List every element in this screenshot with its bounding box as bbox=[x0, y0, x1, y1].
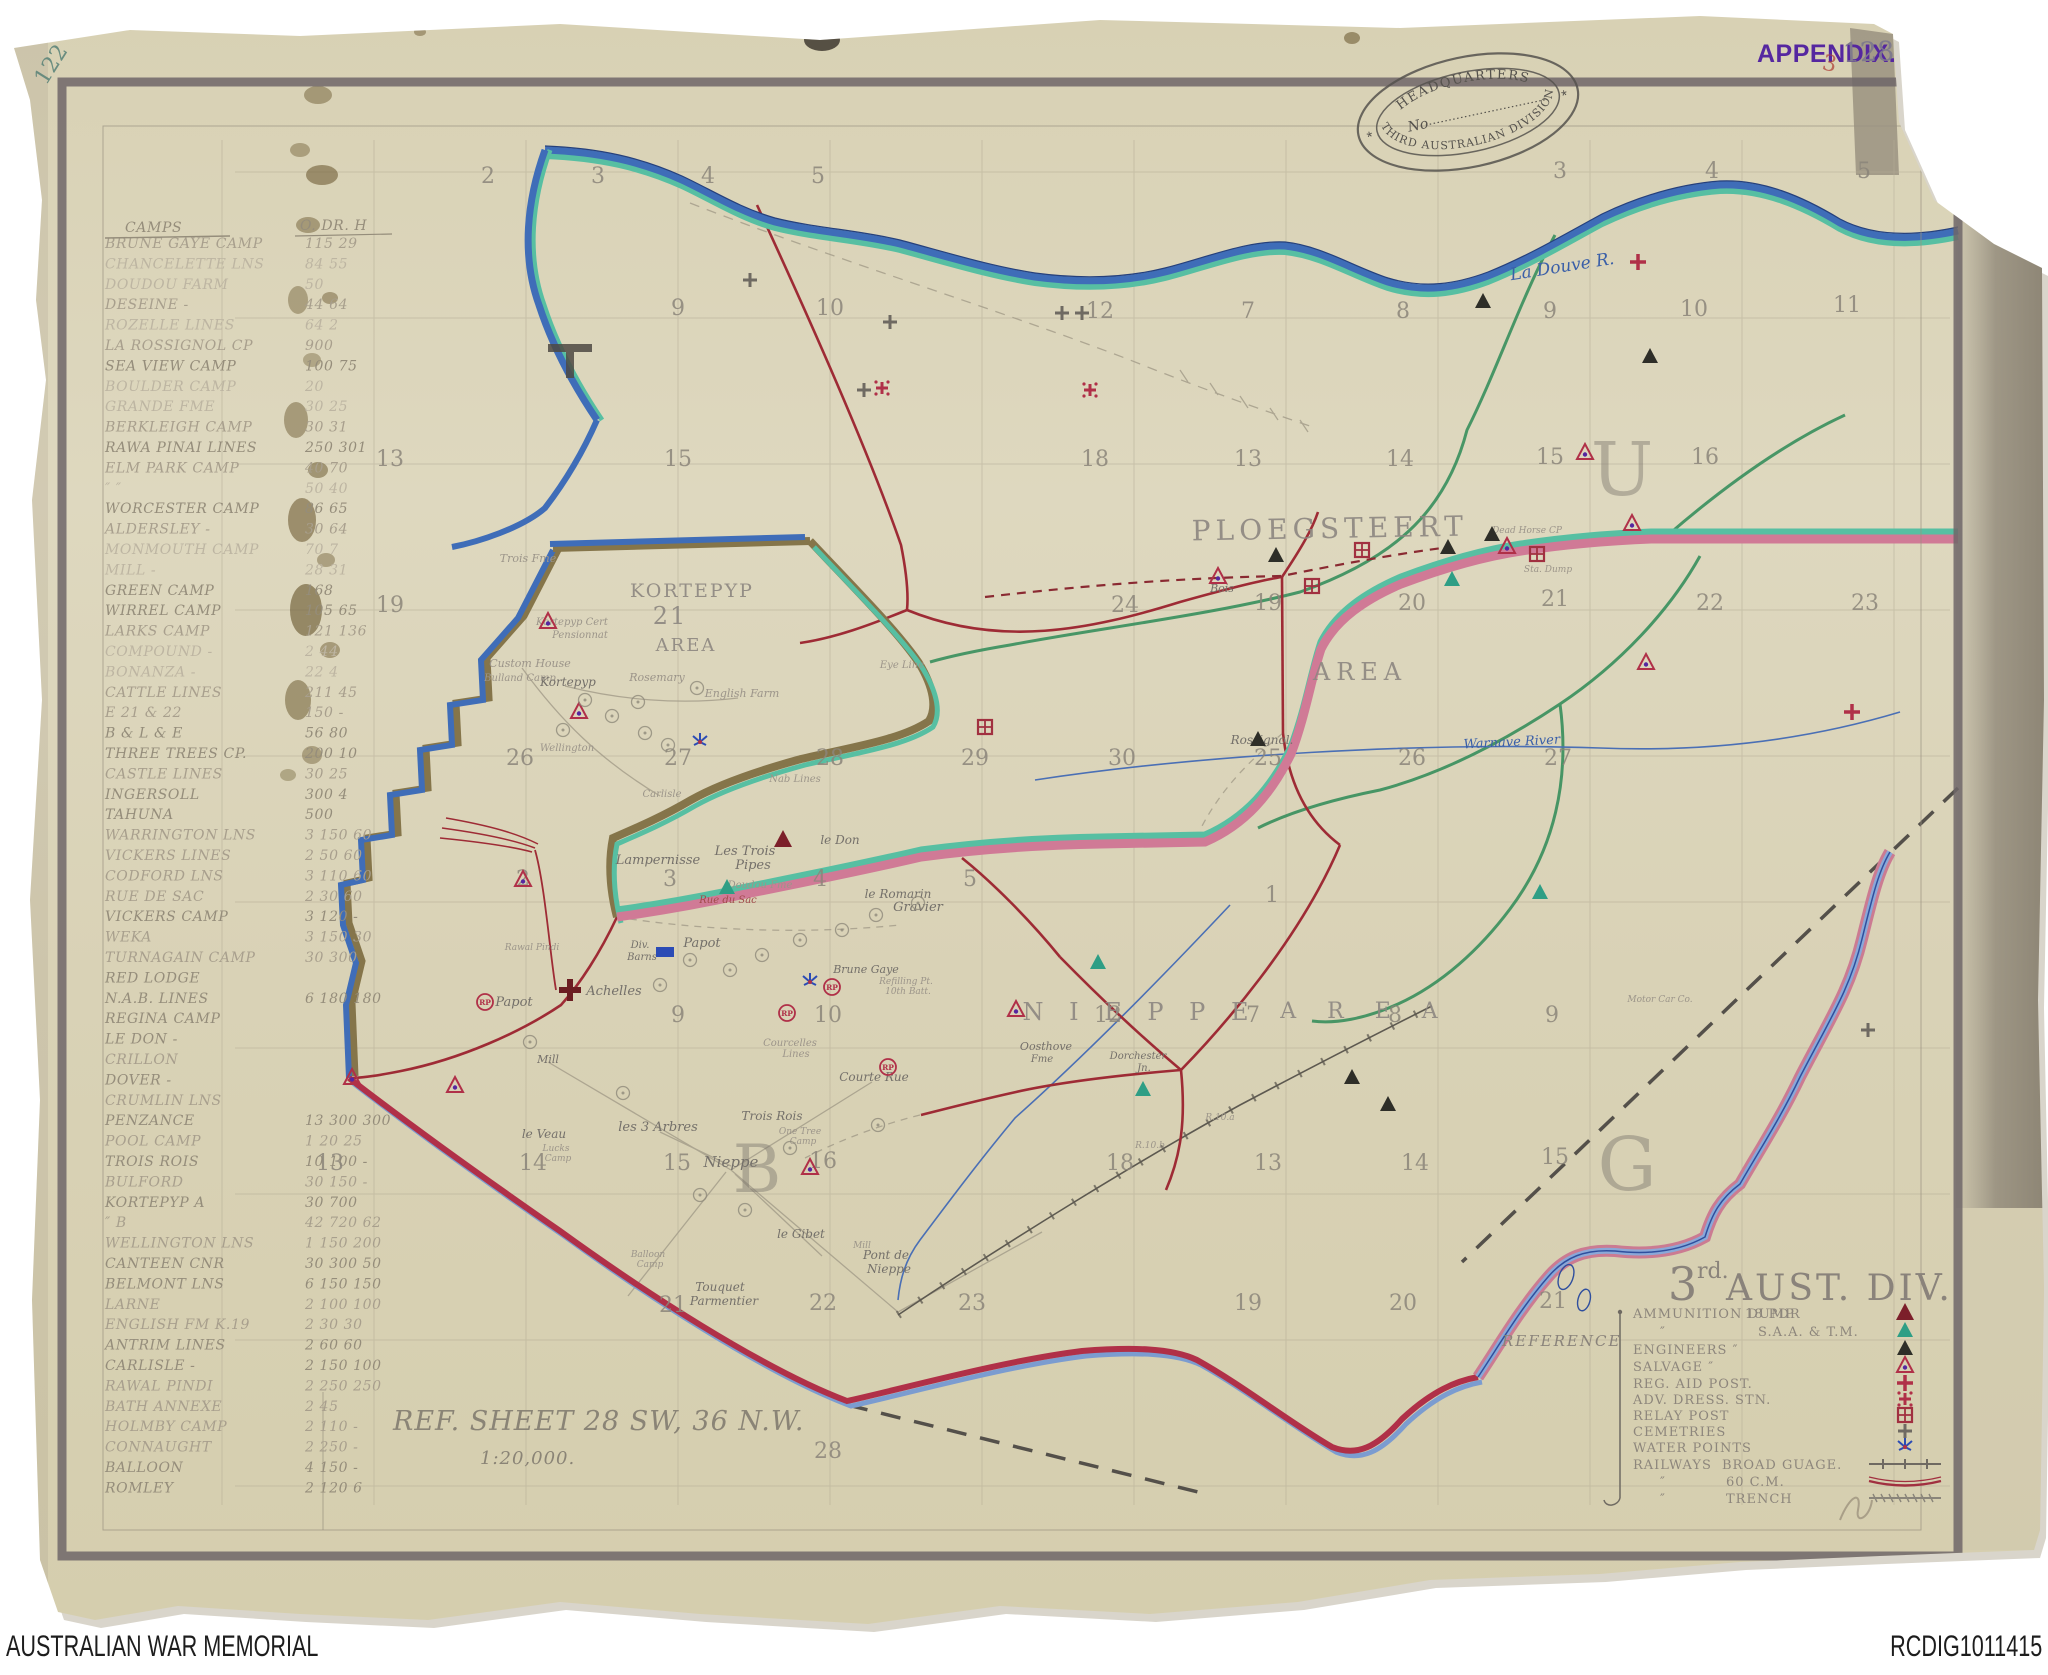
camp-row-value: 44 64 bbox=[304, 297, 348, 313]
grid-number: 26 bbox=[506, 746, 534, 771]
camp-row-value: 2 100 100 bbox=[304, 1297, 382, 1313]
place-label: Les Trois bbox=[714, 844, 776, 859]
camp-row-value: 115 29 bbox=[305, 236, 358, 252]
grid-number: 29 bbox=[961, 746, 989, 771]
camp-row-value: 900 bbox=[305, 338, 334, 354]
camp-row-value: 70 7 bbox=[305, 542, 339, 558]
place-label: Camp bbox=[545, 1154, 572, 1164]
grid-number: 5 bbox=[963, 867, 977, 892]
camp-row-value: 2 50 60 bbox=[304, 848, 363, 864]
grid-number: 4 bbox=[1705, 159, 1719, 184]
camp-row-name: CRUMLIN LNS bbox=[105, 1093, 222, 1109]
camp-row-value: 84 55 bbox=[305, 256, 348, 272]
camp-row-name: ELM PARK CAMP bbox=[104, 460, 239, 476]
camp-row-name: KORTEPYP A bbox=[104, 1195, 205, 1211]
camp-row-name: CHANCELETTE LNS bbox=[105, 256, 264, 272]
camp-row-value: 2 120 6 bbox=[304, 1480, 363, 1496]
place-label: Rosemary bbox=[628, 671, 685, 684]
camp-row-value: 30 25 bbox=[305, 766, 348, 782]
legend-item-label: SALVAGE ″ bbox=[1633, 1360, 1714, 1375]
grid-number: 16 bbox=[1691, 445, 1719, 470]
svg-text:RP: RP bbox=[826, 983, 838, 992]
camp-row-value: 105 65 bbox=[305, 603, 358, 619]
map-symbol-cross-dots-icon bbox=[874, 380, 889, 395]
camp-row-name: ROMLEY bbox=[104, 1480, 175, 1496]
grid-number: 15 bbox=[664, 447, 692, 472]
map-symbol-cross-dots-icon bbox=[1897, 1391, 1912, 1406]
svg-text:RP: RP bbox=[781, 1009, 793, 1018]
camp-row-value: 3 150 30 bbox=[305, 930, 372, 946]
camp-row-value: 150 - bbox=[305, 705, 344, 721]
camp-row-name: POOL CAMP bbox=[104, 1134, 201, 1150]
camp-row-value: 50 40 bbox=[305, 481, 348, 497]
place-label: Dorchester bbox=[1109, 1051, 1168, 1062]
grid-number: 14 bbox=[1401, 1151, 1429, 1176]
place-label: Carlisle bbox=[642, 789, 681, 800]
camp-row-name: WORCESTER CAMP bbox=[105, 501, 259, 517]
camp-row-value: 4 150 - bbox=[304, 1460, 358, 1476]
camp-row-name: TAHUNA bbox=[105, 807, 174, 823]
map-scale: 1:20,000. bbox=[480, 1448, 575, 1469]
camp-row-value: 50 bbox=[305, 277, 324, 293]
paper-right-fold-band bbox=[1956, 80, 2044, 1208]
division-title-rest: AUST. DIV. bbox=[1725, 1268, 1953, 1309]
camp-row-name: BULFORD bbox=[104, 1174, 184, 1190]
division-title-rd: rd. bbox=[1697, 1259, 1729, 1284]
legend-item-label: CEMETRIES bbox=[1633, 1425, 1726, 1440]
place-label: Div. bbox=[630, 940, 650, 951]
camp-row-value: 200 10 bbox=[304, 746, 358, 762]
camp-row-name: RUE DE SAC bbox=[104, 889, 204, 905]
place-label: Mill bbox=[536, 1053, 559, 1066]
grid-number: 19 bbox=[1234, 1291, 1262, 1316]
legend-item-detail: BROAD GUAGE. bbox=[1722, 1458, 1842, 1473]
camp-row-name: ANTRIM LINES bbox=[103, 1338, 226, 1354]
grid-number: 13 bbox=[1254, 1151, 1282, 1176]
place-label: Rawal Pindi bbox=[504, 943, 560, 953]
grid-number: 19 bbox=[376, 593, 404, 618]
camp-row-name: DOVER - bbox=[104, 1072, 172, 1088]
place-label: Trois Fme bbox=[500, 552, 557, 565]
place-label: R.10.a bbox=[1204, 1113, 1234, 1123]
camp-row-name: ″ B bbox=[105, 1215, 127, 1231]
paper-right-lower-shade bbox=[1960, 1208, 2044, 1550]
archive-scan-page: { "archive": { "footer_left": "AUSTRALIA… bbox=[0, 0, 2048, 1670]
grid-number: 4 bbox=[701, 164, 715, 189]
grid-number: 14 bbox=[1386, 447, 1414, 472]
place-label: Balloon bbox=[630, 1250, 666, 1260]
svg-text:RP: RP bbox=[882, 1063, 894, 1072]
legend-item-detail: S.A.A. & T.M. bbox=[1758, 1325, 1859, 1340]
camp-row-name: BALLOON bbox=[104, 1460, 184, 1476]
legend-item-detail: 18 PDR bbox=[1745, 1307, 1801, 1322]
area-name: KORTEPYP bbox=[630, 580, 754, 602]
camp-row-value: 3 150 60 bbox=[305, 828, 372, 844]
camp-row-name: BOULDER CAMP bbox=[104, 379, 236, 395]
camp-row-value: 100 75 bbox=[305, 358, 358, 374]
camp-row-value: 2 44 bbox=[304, 644, 339, 660]
place-label: Lines bbox=[781, 1049, 809, 1060]
grid-sheet-letter: G bbox=[1597, 1122, 1656, 1208]
camp-row-name: GREEN CAMP bbox=[105, 583, 214, 599]
place-label: le Don bbox=[820, 833, 859, 847]
archive-footer-id: RCDIG1011415 bbox=[1890, 1630, 2042, 1664]
place-label: Courte Rue bbox=[839, 1070, 908, 1084]
camp-row-name: VICKERS CAMP bbox=[105, 909, 228, 925]
camp-row-name: RAWAL PINDI bbox=[104, 1378, 213, 1394]
camp-row-name: VICKERS LINES bbox=[105, 848, 231, 864]
grid-number: 16 bbox=[809, 1149, 837, 1174]
camp-row-name: RAWA PINAI LINES bbox=[104, 440, 257, 456]
camp-row-value: 1 20 25 bbox=[305, 1134, 363, 1150]
camp-row-value: 2 45 bbox=[304, 1399, 339, 1415]
grid-number: 3 bbox=[663, 867, 677, 892]
camp-row-name: DOUDOU FARM bbox=[104, 277, 229, 293]
legend-item-label: RELAY POST bbox=[1633, 1409, 1729, 1424]
legend-item-label: ″ bbox=[1660, 1325, 1666, 1340]
camp-row-name: B & L & E bbox=[104, 726, 183, 742]
page-number: 128 bbox=[1842, 36, 1895, 69]
area-name: N I E P P E bbox=[1023, 998, 1258, 1026]
place-label: Oosthove bbox=[1020, 1040, 1073, 1053]
place-label: Brune Gaye bbox=[832, 963, 899, 976]
camp-row-name: ″ ″ bbox=[105, 481, 122, 497]
archive-footer-institution: AUSTRALIAN WAR MEMORIAL bbox=[6, 1630, 318, 1664]
grid-number: 13 bbox=[376, 447, 404, 472]
camp-row-value: 22 4 bbox=[304, 664, 339, 680]
grid-number: 25 bbox=[1254, 746, 1282, 771]
grid-number: 9 bbox=[671, 1003, 685, 1028]
grid-number: 9 bbox=[671, 296, 685, 321]
camp-row-name: CONNAUGHT bbox=[105, 1440, 213, 1456]
place-label: Rue du Sac bbox=[698, 895, 757, 906]
legend-item-label: ADV. DRESS. STN. bbox=[1632, 1393, 1771, 1408]
place-label: Dead Horse CP bbox=[1491, 526, 1563, 536]
camps-header-name: CAMPS bbox=[125, 220, 182, 236]
camp-row-value: 168 bbox=[305, 583, 334, 599]
camp-row-name: LA ROSSIGNOL CP bbox=[104, 338, 253, 354]
place-label: Custom House bbox=[489, 657, 571, 670]
legend-item-label: RAILWAYS bbox=[1633, 1458, 1712, 1473]
grid-number: 18 bbox=[1106, 1151, 1134, 1176]
place-label: Wellington bbox=[540, 743, 594, 754]
place-label: Fme bbox=[1030, 1054, 1053, 1065]
grid-number: 5 bbox=[811, 164, 825, 189]
grid-number: 15 bbox=[663, 1151, 691, 1176]
place-label: Parmentier bbox=[689, 1294, 759, 1308]
division-title-3: 3 bbox=[1668, 1257, 1697, 1311]
grid-number: 30 bbox=[1108, 746, 1136, 771]
grid-number: 22 bbox=[1696, 591, 1724, 616]
camp-row-value: 2 30 60 bbox=[304, 889, 363, 905]
camp-row-value: 2 110 - bbox=[304, 1419, 358, 1435]
area-name: PLOEGSTEERT bbox=[1191, 510, 1468, 548]
place-label: R.10.b bbox=[1134, 1141, 1165, 1151]
legend-item-detail: 60 C.M. bbox=[1726, 1475, 1785, 1490]
place-label: le Romarin bbox=[865, 887, 932, 901]
camp-row-value: 3 120 - bbox=[305, 909, 358, 925]
camp-row-name: ALDERSLEY - bbox=[103, 522, 211, 538]
place-label: Lampernisse bbox=[615, 853, 701, 868]
grid-number: 1 bbox=[1265, 883, 1279, 908]
camp-row-value: 2 30 30 bbox=[304, 1317, 363, 1333]
grid-number: 21 bbox=[659, 1293, 687, 1318]
place-label: Doudou Fme bbox=[727, 880, 793, 891]
camp-row-name: THREE TREES CP. bbox=[105, 746, 247, 762]
camp-row-value: 30 700 bbox=[305, 1195, 358, 1211]
place-label: Camp bbox=[637, 1260, 664, 1270]
camp-row-value: 20 bbox=[304, 379, 324, 395]
grid-number: 8 bbox=[1396, 299, 1410, 324]
camp-row-value: 2 250 250 bbox=[304, 1378, 382, 1394]
grid-number: 23 bbox=[958, 1291, 986, 1316]
camp-row-value: 2 150 100 bbox=[304, 1358, 382, 1374]
place-label: English Farm bbox=[704, 687, 780, 700]
grid-number: 13 bbox=[316, 1151, 344, 1176]
grid-number: 21 bbox=[1541, 587, 1569, 612]
camp-row-name: SEA VIEW CAMP bbox=[105, 358, 236, 374]
camp-row-value: 500 bbox=[305, 807, 334, 823]
camp-row-value: 2 250 - bbox=[304, 1440, 358, 1456]
place-label: Papot bbox=[682, 936, 721, 951]
grid-number: 21 bbox=[1539, 1289, 1567, 1314]
camp-row-value: 121 136 bbox=[305, 624, 367, 640]
map-symbol-hq-icon bbox=[656, 947, 674, 957]
place-label: Kortepyp bbox=[539, 675, 596, 689]
camp-row-name: BELMONT LNS bbox=[104, 1276, 224, 1292]
grid-number: 14 bbox=[519, 1151, 547, 1176]
place-label: les 3 Arbres bbox=[618, 1120, 698, 1135]
camp-row-name: LARNE bbox=[104, 1297, 160, 1313]
grid-number: 26 bbox=[1398, 746, 1426, 771]
place-label: Achelles bbox=[585, 984, 642, 999]
place-label: 10th Batt. bbox=[885, 987, 931, 997]
camp-row-value: 86 65 bbox=[305, 501, 348, 517]
camp-row-value: 13 300 300 bbox=[305, 1113, 391, 1129]
camp-row-name: HOLMBY CAMP bbox=[104, 1419, 227, 1435]
camp-row-name: TURNAGAIN CAMP bbox=[105, 950, 256, 966]
place-label: Jn. bbox=[1135, 1063, 1151, 1074]
grid-number: 5 bbox=[1857, 159, 1871, 184]
legend-item-label: ″ bbox=[1660, 1492, 1666, 1507]
camp-row-name: REGINA CAMP bbox=[104, 1011, 220, 1027]
place-label: Papot bbox=[494, 995, 533, 1010]
place-label: Pensionnat bbox=[551, 630, 609, 641]
camp-row-name: MILL - bbox=[104, 562, 156, 578]
grid-number: 10 bbox=[814, 1003, 842, 1028]
place-label: Touquet bbox=[695, 1280, 745, 1294]
camp-row-name: WIRREL CAMP bbox=[105, 603, 221, 619]
place-label: Motor Car Co. bbox=[1626, 995, 1692, 1005]
camp-row-name: CANTEEN CNR bbox=[105, 1256, 225, 1272]
camp-row-name: CRILLON bbox=[105, 1052, 178, 1068]
camp-row-name: E 21 & 22 bbox=[104, 705, 182, 721]
grid-number: 3 bbox=[1553, 159, 1567, 184]
grid-number: 7 bbox=[1241, 299, 1255, 324]
area-name: 21 bbox=[653, 602, 688, 630]
camp-row-value: 30 31 bbox=[305, 420, 348, 436]
grid-number: 24 bbox=[1111, 593, 1139, 618]
ref-sheet-note: REF. SHEET 28 SW, 36 N.W. bbox=[392, 1406, 804, 1437]
grid-number: 27 bbox=[1544, 746, 1572, 771]
camp-row-value: 30 64 bbox=[305, 522, 348, 538]
camp-row-value: 300 4 bbox=[305, 787, 348, 803]
grid-number: 15 bbox=[1536, 445, 1564, 470]
place-label: Nieppe bbox=[866, 1262, 911, 1276]
grid-number: 10 bbox=[816, 296, 844, 321]
map-symbol-cross-dots-icon bbox=[1082, 382, 1097, 397]
camp-row-value: 42 720 62 bbox=[304, 1215, 382, 1231]
place-label: Eye Line bbox=[879, 660, 924, 671]
grid-number: 18 bbox=[1081, 447, 1109, 472]
camp-row-value: 250 301 bbox=[304, 440, 367, 456]
grid-number: 27 bbox=[664, 746, 692, 771]
camp-row-name: BRUNE GAYE CAMP bbox=[104, 236, 263, 252]
grid-number: 10 bbox=[1680, 297, 1708, 322]
camps-header-value: O. DR. H bbox=[300, 218, 367, 234]
camp-row-name: TROIS ROIS bbox=[105, 1154, 199, 1170]
grid-number: 19 bbox=[1254, 591, 1282, 616]
camp-row-name: CASTLE LINES bbox=[105, 766, 223, 782]
camp-row-value: 3 110 60 bbox=[305, 868, 372, 884]
legend-item-label: REG. AID POST. bbox=[1633, 1377, 1753, 1392]
grid-number: 3 bbox=[591, 164, 605, 189]
grid-number: 23 bbox=[1851, 591, 1879, 616]
camp-row-value: 30 300 50 bbox=[305, 1256, 382, 1272]
camp-row-name: MONMOUTH CAMP bbox=[104, 542, 259, 558]
map-scan: BRUNE GAYE CAMP115 29CHANCELETTE LNS84 5… bbox=[0, 0, 2048, 1670]
camp-row-name: ROZELLE LINES bbox=[104, 318, 235, 334]
grid-number: 15 bbox=[1541, 1145, 1569, 1170]
place-label: Nab Lines bbox=[768, 774, 821, 785]
grid-number: 20 bbox=[1389, 1291, 1417, 1316]
camp-row-name: WELLINGTON LNS bbox=[105, 1236, 254, 1252]
grid-number: 9 bbox=[1545, 1003, 1559, 1028]
grid-number: 9 bbox=[1543, 299, 1557, 324]
grid-number: 28 bbox=[814, 1439, 842, 1464]
camp-row-name: CATTLE LINES bbox=[105, 685, 222, 701]
legend-item-detail: TRENCH bbox=[1726, 1492, 1793, 1507]
place-label: Sta. Dump bbox=[1524, 565, 1572, 575]
place-label: Barns bbox=[626, 952, 657, 963]
camp-row-name: COMPOUND - bbox=[105, 644, 213, 660]
paper-left-edge-shade bbox=[14, 24, 48, 1624]
camp-row-name: WARRINGTON LNS bbox=[105, 828, 256, 844]
camp-row-value: 30 150 - bbox=[305, 1174, 368, 1190]
place-label: le Gibet bbox=[777, 1227, 825, 1241]
camp-row-name: GRANDE FME bbox=[105, 399, 215, 415]
camp-row-name: INGERSOLL bbox=[104, 787, 200, 803]
camp-row-value: 30 25 bbox=[305, 399, 348, 415]
camp-row-name: RED LODGE bbox=[104, 970, 200, 986]
place-label: Pont de bbox=[862, 1248, 909, 1262]
camp-row-value: 211 45 bbox=[304, 685, 358, 701]
camp-row-value: 40 70 bbox=[304, 460, 348, 476]
camp-row-name: BERKLEIGH CAMP bbox=[104, 420, 252, 436]
place-label: Lucks bbox=[542, 1144, 570, 1154]
camp-row-name: LARKS CAMP bbox=[104, 624, 210, 640]
grid-number: 13 bbox=[1234, 447, 1262, 472]
camp-row-name: N.A.B. LINES bbox=[104, 991, 209, 1007]
place-label: Nieppe bbox=[703, 1153, 759, 1171]
grid-number: 28 bbox=[816, 746, 844, 771]
grid-number: 11 bbox=[1833, 293, 1861, 318]
place-label: One Tree bbox=[779, 1127, 821, 1137]
grid-sheet-letter: U bbox=[1591, 427, 1653, 513]
place-label: Courcelles bbox=[763, 1038, 817, 1049]
legend-item-label: WATER POINTS bbox=[1633, 1441, 1752, 1456]
grid-number: 20 bbox=[1398, 591, 1426, 616]
place-label: Refilling Pt. bbox=[878, 977, 933, 987]
camp-row-value: 2 60 60 bbox=[304, 1338, 363, 1354]
grid-number: 4 bbox=[813, 867, 827, 892]
camp-row-value: 28 31 bbox=[304, 562, 348, 578]
camp-row-name: CODFORD LNS bbox=[105, 868, 224, 884]
place-label: le Veau bbox=[522, 1127, 566, 1141]
legend-item-label: ″ bbox=[1660, 1475, 1666, 1490]
camp-row-name: WEKA bbox=[105, 930, 152, 946]
place-label: Pipes bbox=[734, 858, 771, 873]
camp-row-value: 6 150 150 bbox=[305, 1276, 382, 1292]
grid-number: 12 bbox=[1086, 299, 1114, 324]
place-label: Trois Rois bbox=[741, 1109, 802, 1123]
camp-row-value: 64 2 bbox=[305, 318, 339, 334]
camp-row-value: 30 300 bbox=[305, 950, 358, 966]
camp-row-name: DESEINE - bbox=[104, 297, 189, 313]
svg-text:RP: RP bbox=[479, 998, 491, 1007]
area-name: AREA bbox=[1312, 658, 1407, 686]
camp-row-name: ENGLISH FM K.19 bbox=[104, 1317, 250, 1333]
camp-row-name: BATH ANNEXE bbox=[104, 1399, 222, 1415]
area-name: A R E A bbox=[1279, 999, 1449, 1024]
camp-row-name: LE DON - bbox=[104, 1032, 178, 1048]
reference-heading: REFERENCE bbox=[1501, 1332, 1621, 1350]
camp-row-value: 6 180 180 bbox=[305, 991, 382, 1007]
camp-row-value: 56 80 bbox=[305, 726, 348, 742]
camp-row-name: CARLISLE - bbox=[105, 1358, 195, 1374]
camp-row-name: PENZANCE bbox=[104, 1113, 195, 1129]
camp-row-name: BONANZA - bbox=[104, 664, 196, 680]
grid-number: 22 bbox=[809, 1291, 837, 1316]
grid-number: 2 bbox=[481, 164, 495, 189]
camp-row-value: 1 150 200 bbox=[305, 1236, 382, 1252]
area-name: AREA bbox=[655, 635, 717, 656]
legend-item-label: ENGINEERS ″ bbox=[1633, 1343, 1738, 1358]
